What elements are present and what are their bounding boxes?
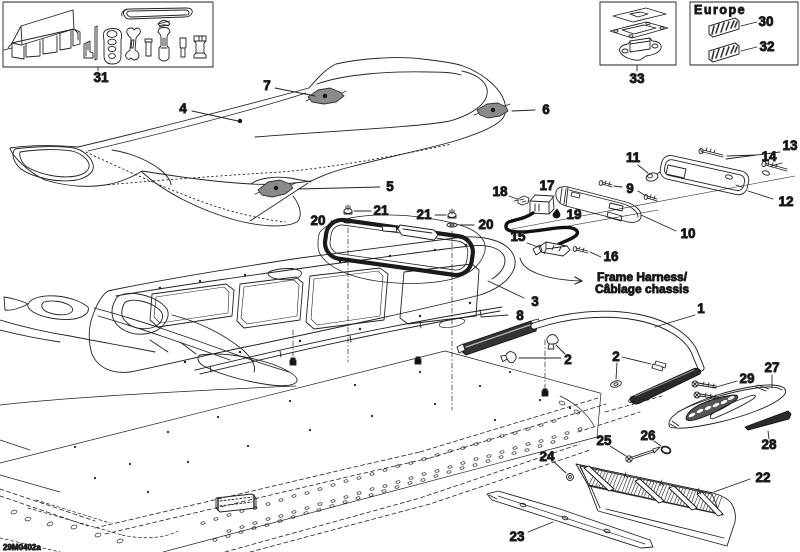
svg-text:13: 13 [782,138,798,153]
svg-text:4: 4 [179,101,187,116]
svg-text:6: 6 [542,102,550,117]
svg-text:17: 17 [539,178,554,193]
svg-text:11: 11 [626,150,641,165]
svg-text:9: 9 [626,181,634,196]
svg-text:8: 8 [516,308,524,323]
svg-text:21: 21 [416,207,432,222]
svg-text:3: 3 [531,294,539,309]
svg-text:20: 20 [310,213,325,228]
svg-text:19: 19 [566,207,581,222]
svg-text:32: 32 [759,39,774,54]
svg-text:Europe: Europe [694,3,746,17]
svg-text:12: 12 [778,194,793,209]
svg-text:29M0402a: 29M0402a [3,543,41,552]
svg-text:20: 20 [478,217,493,232]
svg-text:10: 10 [680,226,695,241]
svg-text:30: 30 [758,14,773,29]
svg-text:21: 21 [373,203,389,218]
svg-text:23: 23 [509,529,525,544]
svg-text:14: 14 [761,149,777,164]
svg-text:7: 7 [263,78,271,93]
svg-text:2: 2 [612,349,620,364]
svg-text:24: 24 [539,449,555,464]
svg-text:Câblage chassis: Câblage chassis [595,282,689,296]
svg-text:29: 29 [739,371,754,386]
svg-text:18: 18 [492,184,508,199]
svg-text:33: 33 [629,71,645,86]
svg-text:31: 31 [93,70,109,85]
svg-text:27: 27 [764,360,779,375]
svg-text:15: 15 [510,229,526,244]
svg-text:22: 22 [755,470,770,485]
svg-text:5: 5 [386,179,394,194]
svg-text:16: 16 [603,249,619,264]
svg-text:1: 1 [697,301,705,316]
